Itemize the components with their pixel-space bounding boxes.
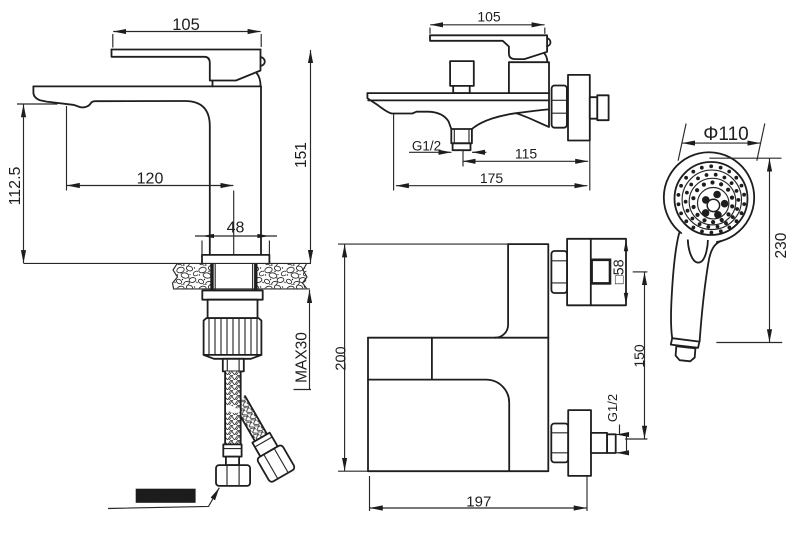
svg-text:2-G1/2: 2-G1/2 [146, 489, 184, 503]
svg-text:120: 120 [137, 171, 164, 188]
svg-text:200: 200 [334, 346, 350, 370]
svg-text:G1/2: G1/2 [605, 394, 620, 422]
svg-text:115: 115 [515, 146, 538, 162]
svg-text:150: 150 [631, 344, 647, 368]
svg-text:48: 48 [227, 220, 245, 237]
svg-text:105: 105 [172, 16, 200, 34]
svg-text:151: 151 [293, 142, 310, 168]
svg-text:G1/2: G1/2 [412, 139, 441, 154]
svg-text:112.5: 112.5 [7, 166, 24, 205]
svg-text:175: 175 [480, 170, 504, 186]
svg-text:□58: □58 [612, 259, 628, 284]
svg-text:197: 197 [466, 494, 491, 511]
svg-text:230: 230 [773, 232, 790, 258]
svg-text:Φ110: Φ110 [703, 124, 748, 145]
svg-text:105: 105 [477, 9, 501, 25]
svg-text:MAX30: MAX30 [294, 332, 311, 383]
